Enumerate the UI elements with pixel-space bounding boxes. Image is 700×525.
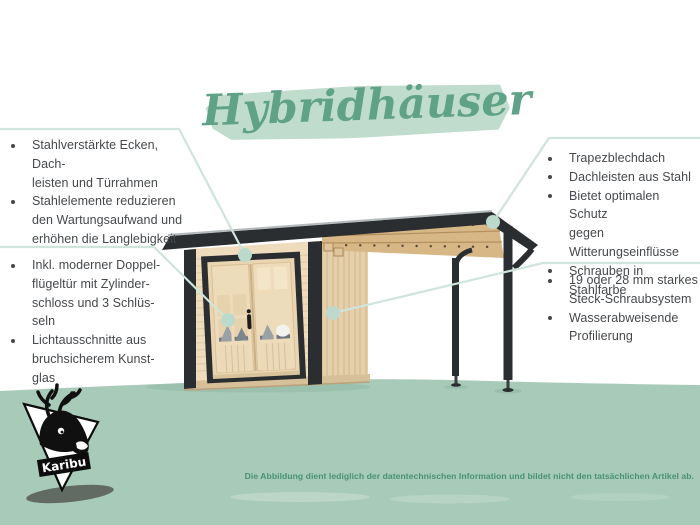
door-panel-left <box>219 344 249 372</box>
bullet-item: Trapezblechdach <box>546 149 700 168</box>
feature-list-top-left: Stahlverstärkte Ecken, Dach- leisten und… <box>9 136 195 249</box>
page-title: Hybridhäuser <box>201 71 513 142</box>
bullet-dot <box>548 316 552 320</box>
bullet-text: Wasserabweisende Profilierung <box>569 309 678 347</box>
callout-bottom-right: 19 oder 28 mm starkes Steck-Schraubsyste… <box>546 271 700 346</box>
feature-list-bottom-right: 19 oder 28 mm starkes Steck-Schraubsyste… <box>546 271 700 346</box>
bullet-dot <box>548 157 552 161</box>
beam-end <box>324 243 333 251</box>
ground-smudge <box>390 495 510 504</box>
bullet-text: Stahlelemente reduzieren den Wartungsauf… <box>32 192 182 248</box>
feature-list-bottom-left: Inkl. moderner Doppel- flügeltür mit Zyl… <box>9 256 195 388</box>
bullet-item: 19 oder 28 mm starkes Steck-Schraubsyste… <box>546 271 700 309</box>
ground-smudge <box>570 493 670 501</box>
foot-screw <box>455 376 458 384</box>
cabin <box>184 236 370 390</box>
bullet-text: Stahlverstärkte Ecken, Dach- leisten und… <box>32 136 195 192</box>
bullet-text: Dachleisten aus Stahl <box>569 168 691 187</box>
bullet-item: Bietet optimalen Schutz gegen Witterungs… <box>546 187 700 262</box>
bullet-item: Inkl. moderner Doppel- flügeltür mit Zyl… <box>9 256 195 331</box>
double-door <box>201 252 306 384</box>
callout-top-left: Stahlverstärkte Ecken, Dach- leisten und… <box>9 136 195 249</box>
deer-eye <box>58 428 64 434</box>
bullet-dot <box>548 175 552 179</box>
bullet-item: Lichtausschnitte aus bruchsicherem Kunst… <box>9 331 195 387</box>
bullet-dot <box>11 339 15 343</box>
beam-end <box>334 248 343 256</box>
infographic-page: Karibu Hybridhäuser Stahlverstärkte Ecke… <box>0 0 700 525</box>
bullet-text: 19 oder 28 mm starkes Steck-Schraubsyste… <box>569 271 698 309</box>
bullet-dot <box>548 194 552 198</box>
foot-plate <box>451 383 461 387</box>
callout-bottom-left: Inkl. moderner Doppel- flügeltür mit Zyl… <box>9 256 195 388</box>
bullet-item: Wasserabweisende Profilierung <box>546 309 700 347</box>
bullet-dot <box>11 144 15 148</box>
title-block: Hybridhäuser <box>202 74 512 142</box>
corner-trim-right <box>308 241 322 385</box>
canopy-post-front <box>504 226 513 380</box>
callout-dot-bottom-right <box>326 306 340 320</box>
bullet-item: Dachleisten aus Stahl <box>546 168 700 187</box>
disclaimer-text: Die Abbildung dient lediglich der datent… <box>214 471 694 481</box>
bullet-item: Stahlelemente reduzieren den Wartungsauf… <box>9 192 195 248</box>
ground <box>0 379 700 525</box>
bullet-text: Inkl. moderner Doppel- flügeltür mit Zyl… <box>32 256 160 331</box>
door-panel-right <box>260 342 291 370</box>
bullet-dot <box>11 264 15 268</box>
foot-plate <box>503 388 514 392</box>
foot-screw <box>507 380 510 389</box>
bullet-text: Lichtausschnitte aus bruchsicherem Kunst… <box>32 331 155 387</box>
deer-pupil <box>61 431 64 434</box>
door-handle <box>247 314 252 329</box>
bullet-dot <box>548 279 552 283</box>
bullet-text: Bietet optimalen Schutz gegen Witterungs… <box>569 187 700 262</box>
bullet-item: Stahlverstärkte Ecken, Dach- leisten und… <box>9 136 195 192</box>
canopy-post-back <box>452 258 459 376</box>
callout-dot-top-right <box>486 215 500 229</box>
ground-smudge <box>230 492 370 502</box>
bullet-text: Trapezblechdach <box>569 149 665 168</box>
callout-dot-top-left <box>238 248 252 262</box>
bullet-dot <box>11 200 15 204</box>
callout-dot-bottom-left <box>221 313 235 327</box>
